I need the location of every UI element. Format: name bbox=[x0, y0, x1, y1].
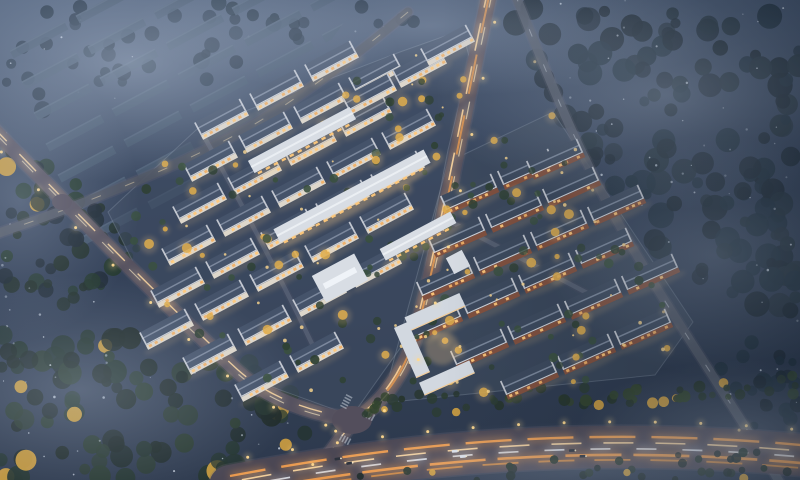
rendered-scene bbox=[0, 0, 800, 480]
vignette-overlay bbox=[0, 0, 800, 480]
aerial-night-render bbox=[0, 0, 800, 480]
